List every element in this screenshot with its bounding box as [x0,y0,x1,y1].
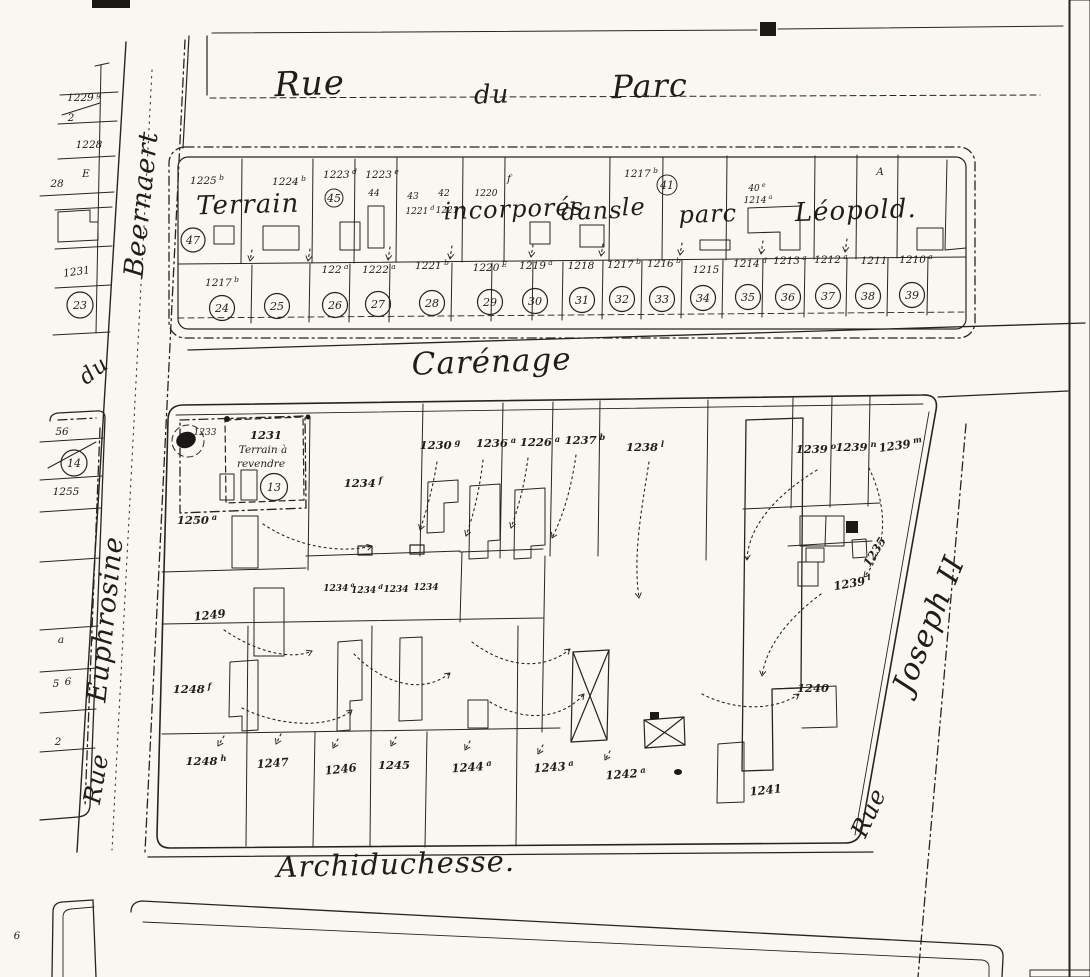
map-canvas: Rue du Parc Beernaert du Euphrosine Rue … [0,0,1090,977]
parcel-label: 1221 b [415,258,449,272]
terrain-a-revendre-area: 1233 1231 Terrain à revendre 13 [172,415,311,514]
parcel-label: 1234 d [351,583,383,596]
street-label-beernaert: Beernaert [118,129,164,279]
scan-edge [1030,0,1090,977]
plot-number: 14 [67,457,81,470]
parcel-label: 28 [49,178,64,190]
parcel-label: 44 [367,189,380,199]
parcel-label: 40 e [747,181,766,194]
parcel-label: 1236 a [476,435,516,450]
scanned-cadastral-map: Rue du Parc Beernaert du Euphrosine Rue … [0,0,1090,977]
parcel-label: 1245 [378,758,410,772]
parcel-label: 1212 a [814,252,848,266]
parcel-label: 1223 d [323,167,357,181]
street-label-du: du [474,79,510,110]
parcel-label: 1216 b [647,256,681,270]
street-label-rue: Rue [273,63,346,105]
parcel-label: E [81,168,90,180]
parcel-label: 1218 [568,260,595,272]
parcel-label: 1231 [250,428,282,442]
parcel-label: 1231 [63,264,91,280]
block-bottom-left: 6 [14,900,96,977]
parcel-label: 1214 d [733,256,767,270]
street-label-du-fragment: du [74,352,113,390]
parcel-label: 1214 a [744,193,773,206]
svg-text:24: 24 [214,302,229,315]
parcel-label: 1247 [256,755,289,771]
parcel-label: 1225 b [190,173,224,187]
annotation-parc: parc [678,199,738,229]
parcel-label: 1220 [475,189,498,199]
svg-text:32: 32 [615,293,629,306]
parcel-label: 1213 a [773,253,807,267]
svg-text:33: 33 [655,293,669,306]
svg-text:39: 39 [905,289,919,302]
west-parcels-upper: 1229 g 2 1228 28 E 1231 23 [40,63,118,335]
parcel-label: 1234 [383,585,408,595]
large-building-outline [742,418,803,771]
svg-text:29: 29 [482,296,497,309]
street-label-rue-east: Rue [845,784,892,843]
svg-text:25: 25 [269,300,284,313]
parcel-label: 42 [437,189,450,199]
plot-number: 45 [326,192,341,205]
parcel-label: 1234 f [344,475,384,490]
parcel-label: 1248 h [186,753,227,768]
street-label-carenage: Carénage [411,341,572,383]
parcel-label: 2 [67,112,75,124]
parcel-label: 1241 [749,781,782,798]
parcel-label: 1224 b [272,174,306,188]
parcel-label: 1211 [861,255,888,267]
parcel-label: 1234 a [323,581,355,594]
parcel-label: 1217 b [624,166,658,180]
parcel-label: 1239 n [836,439,877,454]
parcel-label: 1249 [193,606,226,623]
svg-text:30: 30 [528,295,542,308]
parcel-label: 1222 a [362,262,396,276]
annotation-le: le [621,193,646,222]
svg-text:38: 38 [861,290,875,303]
parcel-label: 1239 l [832,572,872,593]
parcel-label: 43 [406,192,419,202]
parcel-label: 1221 d [405,204,434,217]
parcel-label: 1242 a [605,765,646,783]
parcel-label: 1243 a [533,758,574,776]
plot-number: 13 [267,481,281,494]
annotation-leopold: Léopold. [793,194,917,228]
parcel-label: 1217 b [607,257,641,271]
parcel-label: 1233 [194,428,217,438]
building-outlines [220,470,257,500]
annotation-dans: dans [561,196,623,226]
building-outline [58,210,98,242]
orientation-arrows [218,455,883,760]
crossed-buildings [571,650,685,775]
building-outlines [427,480,545,559]
svg-text:35: 35 [741,291,755,304]
upper-block: Terrain incorporés dans le parc Léopold.… [169,147,975,338]
street-label-euphrosine: Euphrosine [81,535,129,705]
parcel-label: 1250 a [177,512,217,527]
parcel-label: 1219 a [519,258,553,272]
svg-text:37: 37 [821,290,835,303]
annotation-revendre: revendre [237,458,285,470]
annotation-terrain: Terrain [196,189,300,222]
parcel-label: a [58,634,64,646]
street-carenage: Carénage [188,323,1085,383]
street-rue-du-parc: Rue du Parc [207,26,1063,111]
street-archiduchesse: Archiduchesse. [273,844,515,884]
lower-block: 1233 1231 Terrain à revendre 13 1 [148,395,936,857]
plot-number: 23 [72,299,87,312]
parcel-boundaries-lower-half [246,626,518,847]
parcel-label: 1240 [797,681,829,695]
parcel-label: 1235 [860,535,889,570]
parcel-label: 122 a [322,262,349,276]
parcel-label: 1255 [53,486,80,498]
parcel-label: 1229 g [67,90,101,104]
parcel-label: f [506,173,513,185]
parcel-label: 1223 e [365,167,399,181]
parcel-label: 1228 [76,139,103,151]
parcel-label: 1217 b [205,275,239,289]
building-outline [717,742,744,803]
street-joseph-ii: Joseph II Rue [845,391,1068,977]
annotation-terrain-a: Terrain à [239,444,287,456]
parcel-label: 56 [55,426,69,438]
svg-text:27: 27 [370,298,385,311]
plot-number: 47 [185,234,200,247]
block-bottom [131,901,1003,977]
parcel-label: 5 [53,678,60,690]
plot-number: 41 [659,179,674,192]
svg-text:28: 28 [424,297,439,310]
parcel-label: 1244 a [451,758,492,776]
parcel-label: 1238 l [626,439,664,454]
parcel-label: 1220 E [473,260,508,274]
house-number-row: 24 25 26 27 28 29 30 31 32 33 34 35 36 3… [210,283,925,321]
svg-text:26: 26 [327,299,342,312]
parcel-label: 1226 a [520,434,560,449]
svg-text:34: 34 [696,292,710,305]
parcel-label: 6 [14,930,21,942]
parcel-label: 1239 m [878,434,924,455]
svg-text:36: 36 [781,291,795,304]
street-label-parc: Parc [610,66,689,107]
parcel-label: 1230 g [420,437,461,452]
parcel-label: 6 [65,676,72,688]
parcel-boundaries-upper-half [308,396,870,570]
parcel-label: A [875,166,884,178]
svg-text:31: 31 [575,294,589,307]
parcel-label: 1234 [413,583,438,593]
parcel-label: 1215 [693,264,720,276]
parcel-label: 1248 f [173,681,213,696]
street-label-archiduchesse: Archiduchesse. [273,844,515,884]
parcel-label: 2 [54,736,62,748]
parcel-label: 1246 [324,760,357,777]
